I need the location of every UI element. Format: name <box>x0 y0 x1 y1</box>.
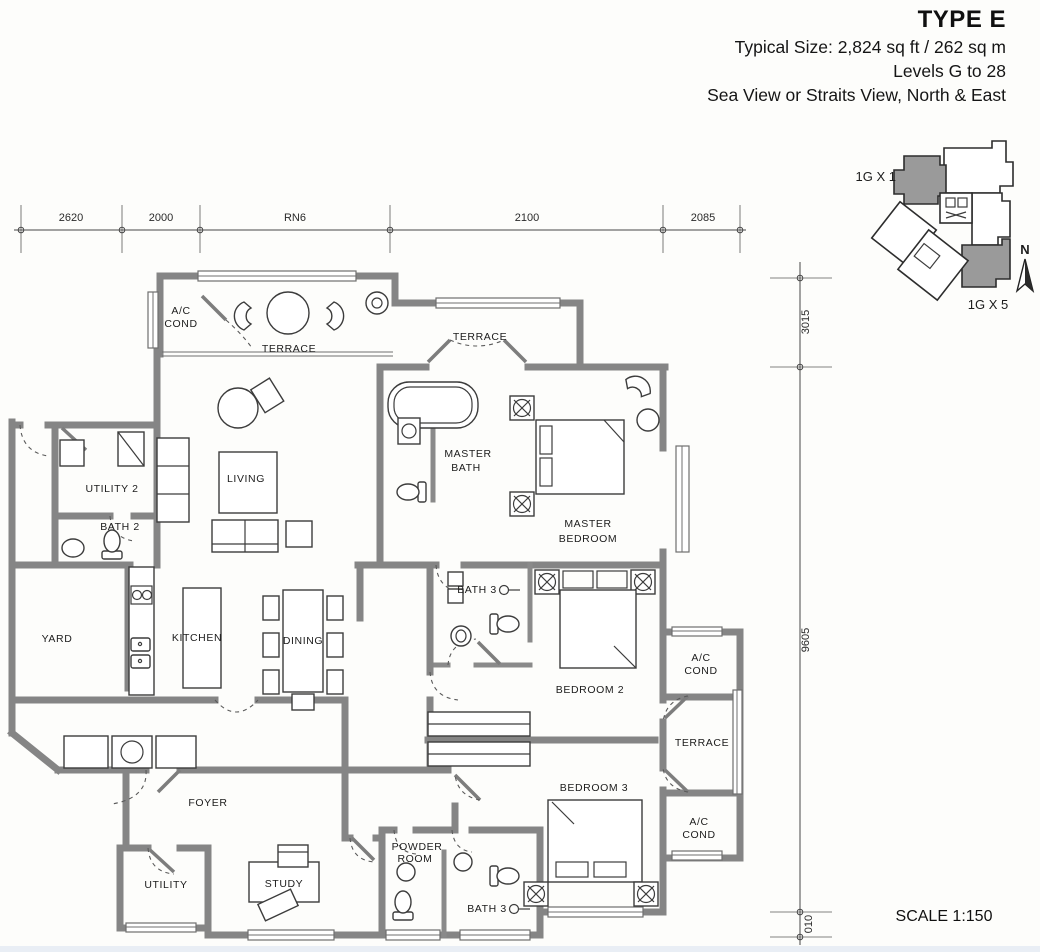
label-ac-cond-right-top: A/C <box>691 652 710 664</box>
window-utility <box>126 923 196 932</box>
bedroom3-furniture <box>524 800 658 906</box>
window-terrace-right <box>733 690 742 794</box>
label-ac-cond-right-bottom: A/C <box>689 816 708 828</box>
keyplan-unit-highlight-bottom <box>962 239 1010 287</box>
keyplan-unit-ne <box>944 141 1013 193</box>
keyplan-unit-highlight-top <box>894 156 946 204</box>
terrace-table-set <box>234 292 388 334</box>
kitchen-fixtures <box>129 567 221 695</box>
dim-right-1: 3015 <box>800 310 812 334</box>
floor-plan-drawing: 2620 2000 RN6 2100 2085 3015 9605 010 <box>0 0 1040 952</box>
master-bedroom-furniture <box>510 371 659 516</box>
label-master-bath-2: BATH <box>451 462 481 474</box>
label-terrace-mid: TERRACE <box>453 331 507 343</box>
label-terrace-right: TERRACE <box>675 737 729 749</box>
north-label: N <box>1020 242 1029 257</box>
label-bath3-bottom: BATH 3 <box>467 903 507 915</box>
dim-top-5: 2085 <box>691 212 715 224</box>
label-kitchen: KITCHEN <box>172 632 222 644</box>
dim-top-2: 2000 <box>149 212 173 224</box>
label-bath2: BATH 2 <box>100 521 140 533</box>
dim-top-3: RN6 <box>284 212 306 224</box>
window-terrace-mid <box>436 298 560 308</box>
living-furniture <box>157 378 312 552</box>
label-master-bedroom-2: BEDROOM <box>559 533 617 545</box>
label-master-bath: MASTER <box>444 448 491 460</box>
window-bath3 <box>460 930 530 940</box>
window-study <box>248 930 334 940</box>
label-bath3-mid: BATH 3 <box>457 584 497 596</box>
louvre-ac-bottom <box>672 851 722 860</box>
label-study: STUDY <box>265 878 304 890</box>
scale-label: SCALE 1:150 <box>896 908 993 925</box>
window-powder <box>386 930 440 940</box>
north-arrow-icon: N <box>1017 242 1033 291</box>
label-ac-cond-right-bottom-2: COND <box>682 829 715 841</box>
floorplan-page: TYPE E Typical Size: 2,824 sq ft / 262 s… <box>0 0 1040 952</box>
laundry-appliances <box>64 736 196 768</box>
right-dimension-line: 3015 9605 010 <box>770 262 832 945</box>
label-utility: UTILITY <box>144 879 187 891</box>
dim-right-2: 9605 <box>800 628 812 652</box>
label-terrace-top: TERRACE <box>262 343 316 355</box>
label-ac-cond-right-top-2: COND <box>684 665 717 677</box>
key-plan: 1G X 1 1G X 5 N <box>856 141 1033 312</box>
window-bedroom3 <box>548 907 643 917</box>
label-yard: YARD <box>42 633 73 645</box>
label-bedroom2: BEDROOM 2 <box>556 684 624 696</box>
dim-top-1: 2620 <box>59 212 83 224</box>
keyplan-unit-e <box>972 193 1010 245</box>
label-bedroom3: BEDROOM 3 <box>560 782 628 794</box>
powder-fixtures <box>393 863 415 920</box>
label-foyer: FOYER <box>188 797 227 809</box>
top-dimension-line: 2620 2000 RN6 2100 2085 <box>14 205 746 253</box>
dining-set <box>263 590 343 710</box>
label-powder-room: POWDER <box>392 841 443 853</box>
label-utility2: UTILITY 2 <box>85 483 138 495</box>
dim-right-3: 010 <box>803 915 815 933</box>
label-ac-cond-top-2: COND <box>164 318 197 330</box>
label-master-bedroom: MASTER <box>564 518 611 530</box>
label-powder-room-2: ROOM <box>397 853 432 865</box>
page-edge-artifact <box>0 946 1040 952</box>
louvre-ac-top <box>672 627 722 636</box>
keyplan-label-top: 1G X 1 <box>856 169 896 184</box>
bay-window-master <box>676 446 689 552</box>
keyplan-label-bottom: 1G X 5 <box>968 297 1008 312</box>
window-terrace-left <box>148 292 158 348</box>
label-dining: DINING <box>283 635 323 647</box>
label-living: LIVING <box>227 473 265 485</box>
window-terrace-top <box>198 271 356 281</box>
bath2-fixtures <box>62 530 122 559</box>
label-ac-cond-top: A/C <box>171 305 190 317</box>
dim-top-4: 2100 <box>515 212 539 224</box>
